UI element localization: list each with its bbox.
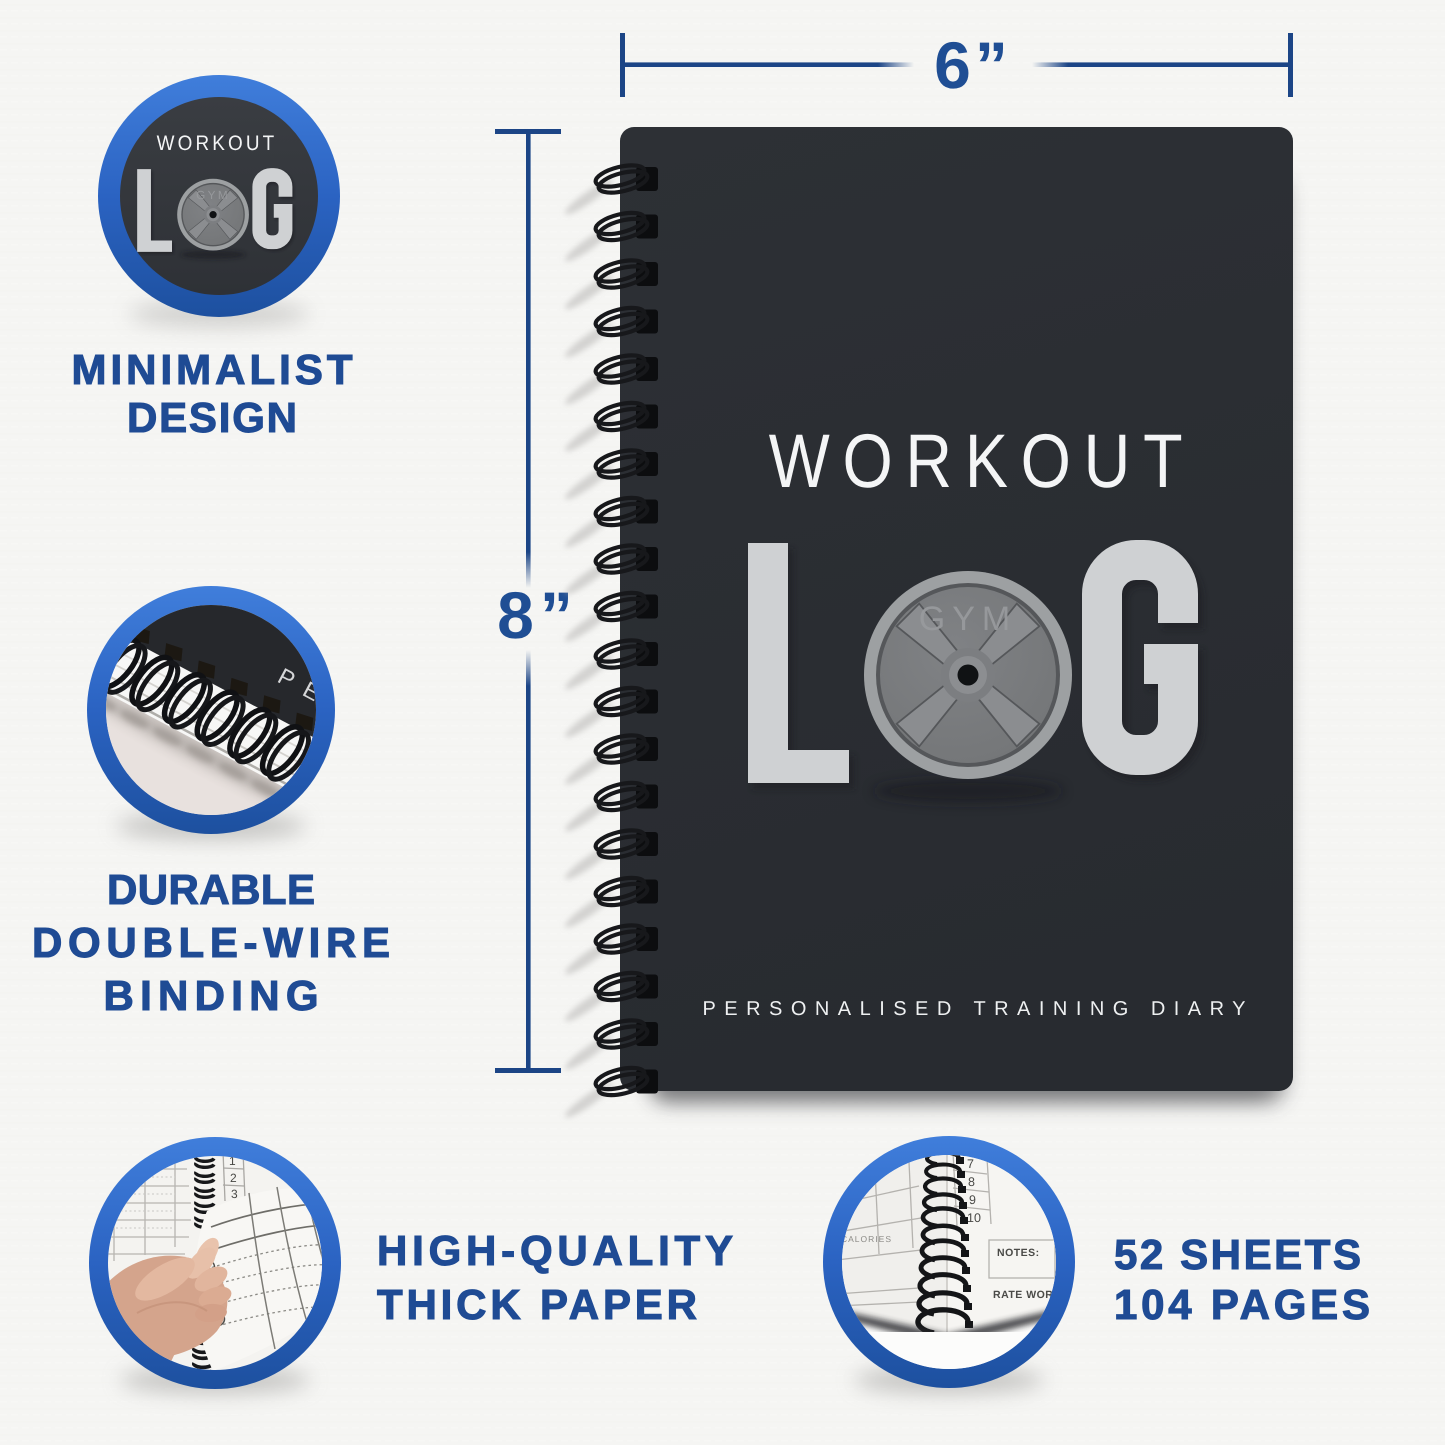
svg-text:6”: 6” [934,28,1012,102]
svg-text:9: 9 [969,1193,976,1207]
svg-text:GYM: GYM [919,600,1017,638]
svg-text:WORKOUT: WORKOUT [157,132,278,155]
svg-text:NOTES:: NOTES: [997,1247,1040,1259]
svg-text:10: 10 [967,1211,981,1225]
svg-text:2: 2 [230,1171,237,1185]
svg-text:DOUBLE-WIRE: DOUBLE-WIRE [32,919,390,966]
svg-text:CALORIES: CALORIES [841,1234,892,1244]
svg-text:7: 7 [967,1157,974,1171]
svg-text:52 SHEETS: 52 SHEETS [1114,1231,1361,1278]
svg-text:WORKOUT: WORKOUT [769,419,1196,504]
svg-text:104 PAGES: 104 PAGES [1114,1281,1370,1328]
svg-text:8: 8 [968,1175,975,1189]
svg-text:DURABLE: DURABLE [107,866,315,913]
svg-text:DESIGN: DESIGN [127,394,297,441]
